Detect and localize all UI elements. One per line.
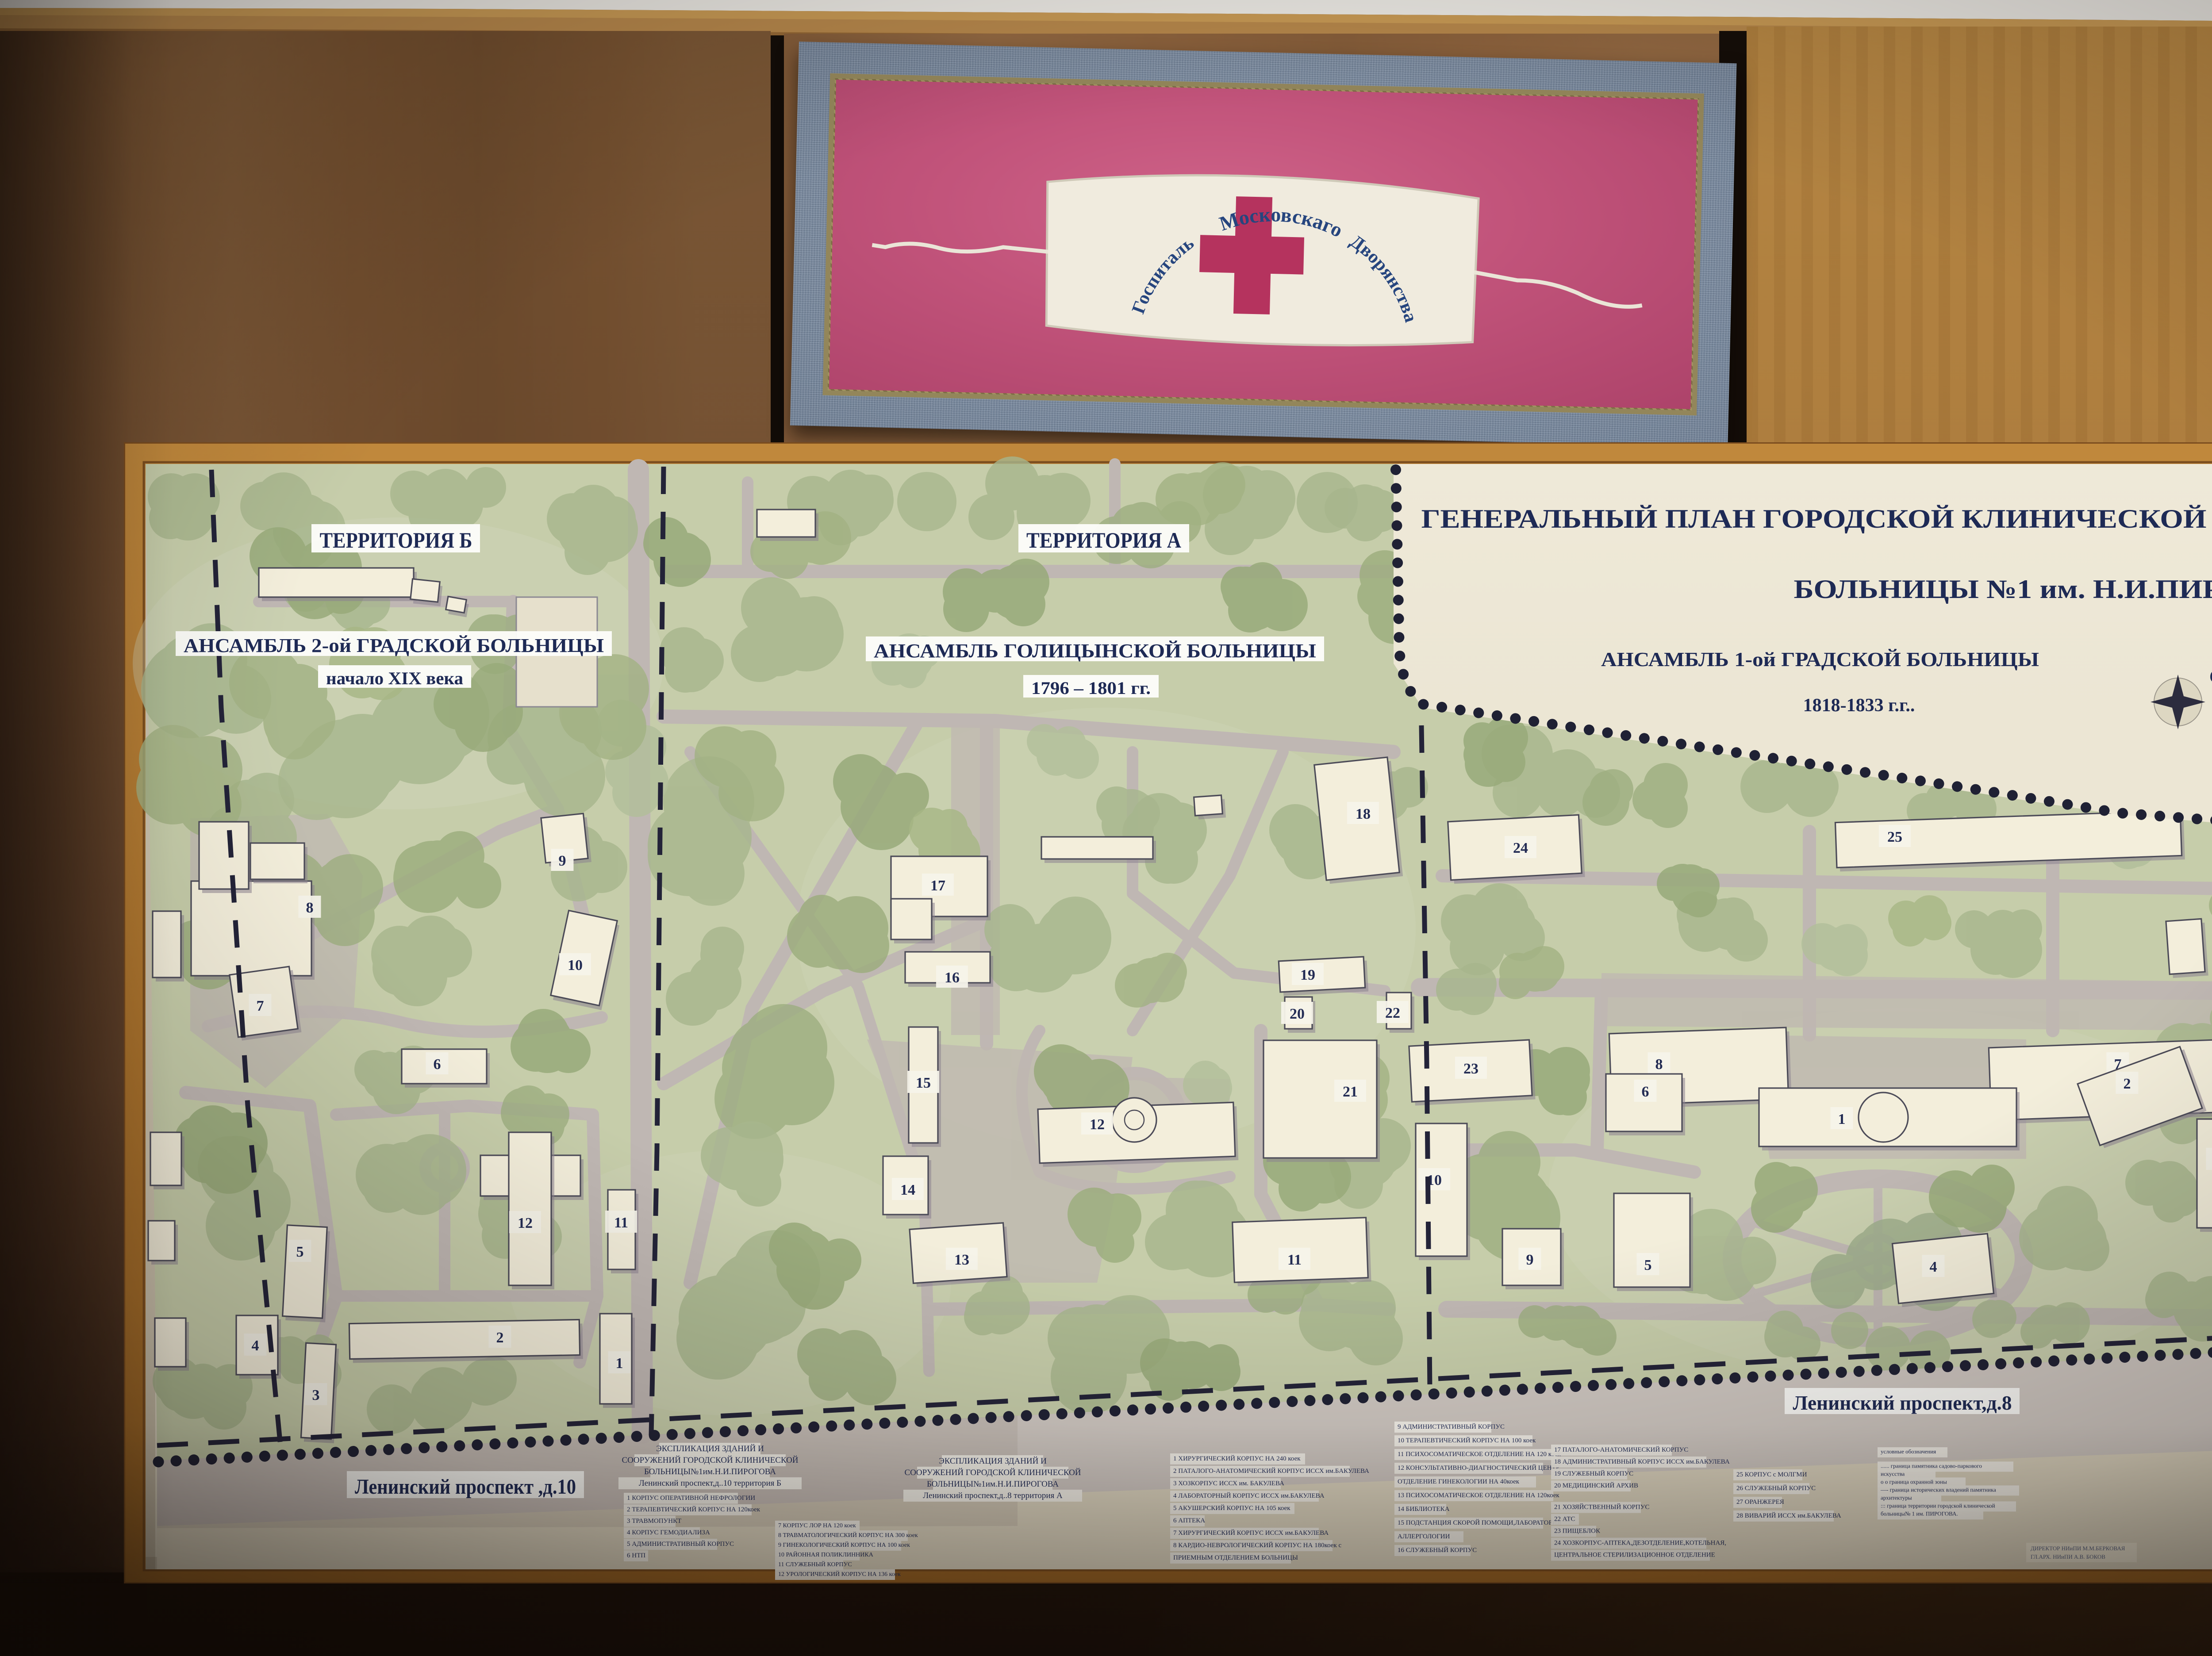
svg-text:больницы№ 1 им. ПИРОГОВА.: больницы№ 1 им. ПИРОГОВА. <box>1881 1510 1958 1517</box>
svg-text:22 АТС: 22 АТС <box>1554 1516 1575 1523</box>
svg-text:БОЛЬНИЦЫ№1им.Н.И.ПИРОГОВА: БОЛЬНИЦЫ№1им.Н.И.ПИРОГОВА <box>927 1480 1059 1489</box>
svg-text:6: 6 <box>1642 1084 1649 1100</box>
svg-text:20: 20 <box>1290 1006 1305 1022</box>
svg-text:6: 6 <box>434 1056 441 1073</box>
svg-text:28 ВИВАРИЙ ИССХ им.БАКУЛЕВА: 28 ВИВАРИЙ ИССХ им.БАКУЛЕВА <box>1736 1512 1841 1519</box>
svg-text:10 РАЙОННАЯ ПОЛИКЛИННИКА: 10 РАЙОННАЯ ПОЛИКЛИННИКА <box>778 1551 874 1558</box>
svg-text:13 ПСИХОСОМАТИЧЕСКОЕ ОТДЕЛЕНИ: 13 ПСИХОСОМАТИЧЕСКОЕ ОТДЕЛЕНИЕ НА 120кое… <box>1398 1492 1559 1499</box>
svg-text:25 КОРПУС с МОЛГМИ: 25 КОРПУС с МОЛГМИ <box>1736 1471 1807 1478</box>
svg-text:12: 12 <box>518 1215 533 1231</box>
svg-text:12: 12 <box>1090 1116 1105 1133</box>
svg-text:1818-1833 г.г..: 1818-1833 г.г.. <box>1803 695 1915 716</box>
svg-text:СООРУЖЕНИЙ ГОРОДСКОЙ КЛИНИЧЕСК: СООРУЖЕНИЙ ГОРОДСКОЙ КЛИНИЧЕСКОЙ <box>622 1456 798 1465</box>
svg-text:10 ТЕРАПЕВТИЧЕСКИЙ КОРПУС НА: 10 ТЕРАПЕВТИЧЕСКИЙ КОРПУС НА 100 коек <box>1398 1437 1536 1444</box>
svg-text:3 ТРАВМОПУНКТ: 3 ТРАВМОПУНКТ <box>627 1518 681 1525</box>
svg-text:1796 – 1801 гг.: 1796 – 1801 гг. <box>1031 678 1151 698</box>
svg-text:1: 1 <box>1838 1111 1846 1127</box>
svg-text:Ленинский проспект,д..8 терр: Ленинский проспект,д..8 территория А <box>923 1491 1063 1500</box>
svg-text:11: 11 <box>1287 1252 1302 1268</box>
svg-text:С: С <box>2209 667 2212 687</box>
svg-text:Ленинский проспект,д..10 тер: Ленинский проспект,д..10 территория Б <box>639 1479 781 1488</box>
svg-text:1: 1 <box>616 1355 623 1372</box>
svg-text:9: 9 <box>559 853 566 869</box>
svg-text:15: 15 <box>916 1075 931 1091</box>
svg-text:5 АДМИНИСТРАТИВНЫЙ КОРПУС: 5 АДМИНИСТРАТИВНЫЙ КОРПУС <box>627 1540 734 1548</box>
svg-text:3: 3 <box>312 1387 320 1403</box>
svg-text:17: 17 <box>930 878 945 894</box>
svg-text:ГЛ.АРХ. НИиПИ А.В: ГЛ.АРХ. НИиПИ А.В. БОКОВ <box>2031 1553 2105 1560</box>
svg-text:4 ЛАБОРАТОРНЫЙ КОРПУС ИССХ: 4 ЛАБОРАТОРНЫЙ КОРПУС ИССХ им.БАКУЛЕВА <box>1173 1492 1325 1499</box>
svg-text:9 АДМИНИСТРАТИВНЫЙ КОРПУС: 9 АДМИНИСТРАТИВНЫЙ КОРПУС <box>1398 1423 1505 1430</box>
svg-text:18 АДМИНИСТРАТИВНЫЙ КОРПУС ИСС: 18 АДМИНИСТРАТИВНЫЙ КОРПУС ИССХ им.БАКУЛ… <box>1554 1458 1730 1465</box>
svg-text:ТЕРРИТОРИЯ А: ТЕРРИТОРИЯ А <box>1026 528 1181 552</box>
svg-text:5 АКУШЕРСКИЙ КОРПУС НА 105: 5 АКУШЕРСКИЙ КОРПУС НА 105 коек <box>1173 1504 1290 1512</box>
svg-text:4: 4 <box>1930 1259 1937 1275</box>
svg-text:СООРУЖЕНИЙ ГОРОДСКОЙ КЛИНИЧЕСК: СООРУЖЕНИЙ ГОРОДСКОЙ КЛИНИЧЕСКОЙ <box>904 1468 1081 1477</box>
svg-text:20 МЕДИЦИНСКИЙ АРХИВ: 20 МЕДИЦИНСКИЙ АРХИВ <box>1554 1482 1638 1489</box>
svg-text:7 ХИРУРГИЧЕСКИЙ КОРПУС ИССХ: 7 ХИРУРГИЧЕСКИЙ КОРПУС ИССХ им.БАКУЛЕВА <box>1173 1529 1329 1537</box>
svg-text:19 СЛУЖЕБНЫЙ КОРПУС: 19 СЛУЖЕБНЫЙ КОРПУС <box>1554 1470 1633 1477</box>
svg-text:11: 11 <box>614 1215 628 1231</box>
svg-text:15 ПОДСТАНЦИЯ СКОРОЙ ПОМОЩИ,: 15 ПОДСТАНЦИЯ СКОРОЙ ПОМОЩИ,ЛАБОРАТОРИЯ <box>1398 1519 1562 1526</box>
svg-text:8: 8 <box>1655 1056 1663 1073</box>
svg-text:13: 13 <box>954 1252 969 1268</box>
svg-text:26 СЛУЖЕБНЫЙ КОРПУС: 26 СЛУЖЕБНЫЙ КОРПУС <box>1736 1484 1816 1492</box>
svg-text:6 АПТЕКА: 6 АПТЕКА <box>1173 1517 1205 1524</box>
svg-text:7 КОРПУС ЛОР НА 120 коек: 7 КОРПУС ЛОР НА 120 коек <box>778 1522 856 1529</box>
svg-text:БОЛЬНИЦЫ№1им.Н.И.ПИРОГОВА: БОЛЬНИЦЫ№1им.Н.И.ПИРОГОВА <box>644 1467 776 1476</box>
svg-text:o o граница охранной зоны: o o граница охранной зоны <box>1881 1478 1947 1485</box>
svg-text:ЭКСПЛИКАЦИЯ ЗДАНИЙ И: ЭКСПЛИКАЦИЯ ЗДАНИЙ И <box>656 1444 764 1453</box>
svg-text:9: 9 <box>1526 1252 1534 1268</box>
svg-text:архитектуры: архитектуры <box>1881 1494 1912 1501</box>
svg-text:начало XIX века: начало XIX века <box>326 668 463 688</box>
svg-text:8 ТРАВМАТОЛОГИЧЕСКИЙ КОРПУС НА: 8 ТРАВМАТОЛОГИЧЕСКИЙ КОРПУС НА 300 коек <box>778 1531 918 1539</box>
svg-text:2 ТЕРАПЕВТИЧЕСКИЙ КОРПУС НА 12: 2 ТЕРАПЕВТИЧЕСКИЙ КОРПУС НА 120коек <box>627 1506 760 1513</box>
svg-text:21 ХОЗЯЙСТВЕННЫЙ КОРПУС: 21 ХОЗЯЙСТВЕННЫЙ КОРПУС <box>1554 1503 1649 1511</box>
svg-text:10: 10 <box>568 957 583 974</box>
svg-text:АНСАМБЛЬ 2-ой ГРАДСКОЙ БОЛЬ: АНСАМБЛЬ 2-ой ГРАДСКОЙ БОЛЬНИЦЫ <box>184 635 604 656</box>
svg-text:21: 21 <box>1343 1084 1358 1100</box>
svg-text:12 КОНСУЛЬТАТИВНО-ДИАГНОСТИЧЕС: 12 КОНСУЛЬТАТИВНО-ДИАГНОСТИЧЕСКИЙ ЦЕНТР, <box>1398 1464 1560 1472</box>
svg-text:ДИРЕКТОР НИиПИ М.М.БЕР: ДИРЕКТОР НИиПИ М.М.БЕРКОВАЯ <box>2031 1545 2125 1552</box>
svg-text:Ленинский проспект,д.8: Ленинский проспект,д.8 <box>1793 1391 2012 1414</box>
svg-text:АНСАМБЛЬ ГОЛИЦЫНСКОЙ БОЛЬНИЦ: АНСАМБЛЬ ГОЛИЦЫНСКОЙ БОЛЬНИЦЫ <box>874 640 1316 662</box>
svg-text:::: граница территории городск: ::: граница территории городской клиниче… <box>1881 1502 1995 1509</box>
svg-text:14 БИБЛИОТЕКА: 14 БИБЛИОТЕКА <box>1398 1506 1450 1513</box>
svg-text:Ленинский проспект ,д.10: Ленинский проспект ,д.10 <box>355 1475 576 1499</box>
svg-text:24: 24 <box>1513 840 1528 856</box>
svg-text:22: 22 <box>1385 1005 1400 1021</box>
svg-text:8: 8 <box>306 900 314 916</box>
svg-text:16 СЛУЖЕБНЫЙ КОРПУС: 16 СЛУЖЕБНЫЙ КОРПУС <box>1398 1546 1477 1554</box>
svg-text:5: 5 <box>1644 1257 1652 1273</box>
svg-text:3 ХОЗКОРПУС ИССХ им. БАКУЛЕВА: 3 ХОЗКОРПУС ИССХ им. БАКУЛЕВА <box>1173 1480 1284 1487</box>
svg-text:11 ПСИХОСОМАТИЧЕСКОЕ ОТДЕЛЕНИ: 11 ПСИХОСОМАТИЧЕСКОЕ ОТДЕЛЕНИЕ НА 120 ко… <box>1398 1451 1561 1458</box>
svg-text:...... граница памятника сад: ...... граница памятника садово-парковог… <box>1881 1462 1982 1469</box>
svg-text:5: 5 <box>296 1244 304 1260</box>
svg-text:23 ПИЩЕБЛОК: 23 ПИЩЕБЛОК <box>1554 1528 1601 1535</box>
svg-text:7: 7 <box>257 998 264 1014</box>
svg-text:6 НТП: 6 НТП <box>627 1552 645 1559</box>
svg-text:1 ХИРУРГИЧЕСКИЙ КОРПУС НА 2: 1 ХИРУРГИЧЕСКИЙ КОРПУС НА 240 коек <box>1173 1455 1301 1462</box>
svg-text:2: 2 <box>496 1330 504 1346</box>
svg-text:16: 16 <box>945 970 960 986</box>
svg-text:23: 23 <box>1463 1061 1479 1077</box>
svg-text:18: 18 <box>1356 806 1371 822</box>
svg-text:17 ПАТАЛОГО-АНАТОМИЧЕСКИЙ КОР: 17 ПАТАЛОГО-АНАТОМИЧЕСКИЙ КОРПУС <box>1554 1446 1688 1453</box>
svg-text:условные обозначения: условные обозначения <box>1881 1448 1936 1455</box>
svg-text:4 КОРПУС ГЕМОДИАЛИЗА: 4 КОРПУС ГЕМОДИАЛИЗА <box>627 1529 710 1536</box>
svg-text:24 ХОЗКОРПУС-АПТЕКА,ДЕЗОТДЕЛЕН: 24 ХОЗКОРПУС-АПТЕКА,ДЕЗОТДЕЛЕНИЕ,КОТЕЛЬН… <box>1554 1540 1726 1547</box>
svg-text:27 ОРАНЖЕРЕЯ: 27 ОРАНЖЕРЕЯ <box>1736 1499 1784 1506</box>
svg-text:4: 4 <box>252 1338 259 1354</box>
svg-text:ПРИЕМНЫМ ОТДЕЛЕНИЕМ БОЛЬНИЦЫ: ПРИЕМНЫМ ОТДЕЛЕНИЕМ БОЛЬНИЦЫ <box>1173 1554 1298 1561</box>
svg-text:1 КОРПУС ОПЕРАТИВНОЙ НЕФРОЛОГИ: 1 КОРПУС ОПЕРАТИВНОЙ НЕФРОЛОГИИ <box>627 1494 755 1502</box>
svg-text:14: 14 <box>900 1182 915 1198</box>
svg-text:АНСАМБЛЬ 1-ой ГРАДСКОЙ: АНСАМБЛЬ 1-ой ГРАДСКОЙ БОЛЬНИЦЫ <box>1601 648 2039 671</box>
svg-text:БОЛЬНИЦЫ №1 им. Н.И.ПИРОГОВА: БОЛЬНИЦЫ №1 им. Н.И.ПИРОГОВА <box>1794 575 2212 604</box>
svg-text:ОТДЕЛЕНИЕ ГИНЕКОЛОГИИ НА 40к: ОТДЕЛЕНИЕ ГИНЕКОЛОГИИ НА 40коек <box>1398 1478 1520 1485</box>
svg-text:9 ГИНЕКОЛОГИЧЕСКИЙ КОРПУС НА 1: 9 ГИНЕКОЛОГИЧЕСКИЙ КОРПУС НА 100 коек <box>778 1541 910 1549</box>
svg-text:19: 19 <box>1300 967 1315 983</box>
svg-text:11 СЛУЖЕБНЫЙ КОРПУС: 11 СЛУЖЕБНЫЙ КОРПУС <box>778 1560 852 1568</box>
svg-text:25: 25 <box>1887 829 1902 845</box>
svg-text:ТЕРРИТОРИЯ Б: ТЕРРИТОРИЯ Б <box>320 528 472 552</box>
svg-text:2: 2 <box>2124 1076 2131 1092</box>
svg-text:искусства: искусства <box>1881 1470 1905 1477</box>
svg-text:12 УРОЛОГИЧЕСКИЙ КОРПУС НА 136: 12 УРОЛОГИЧЕСКИЙ КОРПУС НА 136 коек <box>778 1570 901 1578</box>
svg-text:8 КАРДИО-НЕВРОЛОГИЧЕСКИЙ КОРП: 8 КАРДИО-НЕВРОЛОГИЧЕСКИЙ КОРПУС НА 180ко… <box>1173 1541 1341 1549</box>
svg-text:ЭКСПЛИКАЦИЯ ЗДАНИЙ И: ЭКСПЛИКАЦИЯ ЗДАНИЙ И <box>939 1457 1047 1466</box>
svg-text:ГЕНЕРАЛЬНЫЙ ПЛАН ГОРОДСКОЙ: ГЕНЕРАЛЬНЫЙ ПЛАН ГОРОДСКОЙ КЛИНИЧЕСКОЙ <box>1421 504 2207 533</box>
svg-text:АЛЛЕРГОЛОГИИ: АЛЛЕРГОЛОГИИ <box>1398 1533 1450 1540</box>
svg-text:ЦЕНТРАЛЬНОЕ СТЕРИЛИЗАЦИОННОЕ О: ЦЕНТРАЛЬНОЕ СТЕРИЛИЗАЦИОННОЕ ОТДЕЛЕНИЕ <box>1554 1552 1715 1559</box>
svg-text:—- граница исторических влад: —- граница исторических владений памятни… <box>1880 1486 1996 1493</box>
svg-text:2 ПАТАЛОГО-АНАТОМИЧЕСКИЙ КОРП: 2 ПАТАЛОГО-АНАТОМИЧЕСКИЙ КОРПУС ИССХ им.… <box>1173 1467 1369 1475</box>
